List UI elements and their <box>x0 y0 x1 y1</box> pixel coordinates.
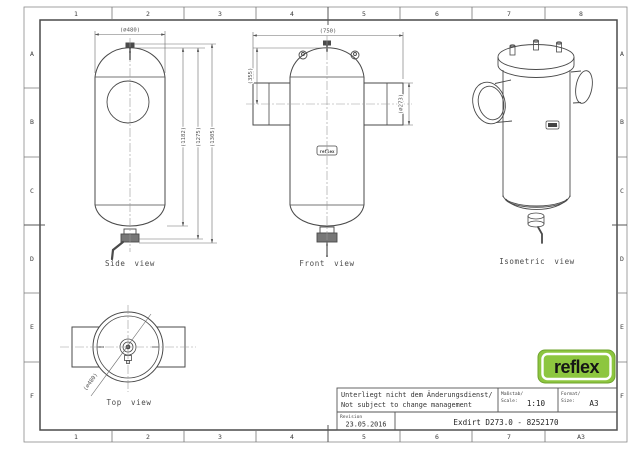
grid-bottom-6: 6 <box>435 433 439 441</box>
grid-top-4: 4 <box>290 10 294 18</box>
front-dim-width: (750) <box>320 29 337 35</box>
drawing-frame <box>24 7 627 442</box>
grid-top-8: 8 <box>579 10 583 18</box>
grid-right-f: F <box>620 392 624 400</box>
note-line2: Not subject to change management <box>341 401 472 409</box>
iso-left-nozzle <box>468 79 512 127</box>
grid-left-f: F <box>30 392 34 400</box>
iso-drain-valve-icon <box>528 213 544 243</box>
scale-label-2: Scale: <box>501 398 518 404</box>
outer-border <box>24 7 627 442</box>
grid-bottom-3: 3 <box>218 433 222 441</box>
side-view: (⌀480) (1182) (1275) (1305) Side view <box>95 28 217 269</box>
scale-label-1: Maßstab/ <box>501 391 523 397</box>
grid-top-3: 3 <box>218 10 222 18</box>
grid-right-b: B <box>620 118 624 126</box>
grid-left-a: A <box>30 50 34 58</box>
iso-top-fittings-icon <box>510 40 562 55</box>
grid-right-c: C <box>620 187 624 195</box>
grid-top-6: 6 <box>435 10 439 18</box>
grid-right-a: A <box>620 50 624 58</box>
part-title: Exdirt D273.0 - 8252170 <box>453 418 559 427</box>
logo-text: reflex <box>554 357 600 377</box>
top-view: (⌀480) Top view <box>60 305 196 407</box>
grid-top-1: 1 <box>74 10 78 18</box>
iso-body <box>503 70 570 197</box>
format-value: A3 <box>589 399 598 408</box>
front-centerlines <box>246 36 412 255</box>
front-view-label: Front view <box>299 259 354 268</box>
top-view-label: Top view <box>107 398 152 407</box>
grid-top-2: 2 <box>146 10 150 18</box>
side-dim-diameter: (⌀480) <box>120 28 140 34</box>
isometric-view: reflex Isometric view <box>468 40 594 266</box>
front-dimensions <box>253 32 413 125</box>
side-dim-1275: (1275) <box>196 127 202 147</box>
format-label-2: Size: <box>561 398 575 404</box>
grid-left-b: B <box>30 118 34 126</box>
grid-left-c: C <box>30 187 34 195</box>
grid-top-7: 7 <box>507 10 511 18</box>
grid-left-d: D <box>30 255 34 263</box>
drawing-sheet: 1 2 3 4 5 6 7 8 1 2 3 4 5 6 7 A3 A B C D… <box>0 0 640 452</box>
reflex-logo: reflex <box>538 350 615 383</box>
grid-top-5: 5 <box>362 10 366 18</box>
iso-nameplate-text: reflex <box>547 124 557 128</box>
grid-bottom-8: A3 <box>577 433 585 441</box>
cad-drawing: 1 2 3 4 5 6 7 8 1 2 3 4 5 6 7 A3 A B C D… <box>0 0 640 452</box>
top-dim-diameter: (⌀480) <box>83 372 100 392</box>
note-line1: Unterliegt nicht dem Änderungsdienst/ <box>341 390 492 399</box>
drain-valve-icon <box>112 229 139 259</box>
side-view-label: Side view <box>105 259 155 268</box>
grid-left-e: E <box>30 323 34 331</box>
grid-bottom-7: 7 <box>507 433 511 441</box>
front-dim-355: (355) <box>248 68 254 85</box>
iso-lid <box>498 45 574 78</box>
iso-nameplate: reflex <box>546 121 559 129</box>
grid-right-e: E <box>620 323 624 331</box>
revision-label: Revision <box>340 414 362 420</box>
title-block: Unterliegt nicht dem Änderungsdienst/ No… <box>337 388 617 430</box>
side-dim-1182: (1182) <box>181 127 187 147</box>
format-label-1: Format/ <box>561 391 581 397</box>
scale-value: 1:10 <box>527 399 546 408</box>
grid-bottom-1: 1 <box>74 433 78 441</box>
front-dim-273: (⌀273) <box>399 94 405 114</box>
grid-bottom-5: 5 <box>362 433 366 441</box>
side-nozzle-face <box>107 81 149 123</box>
grid-right-d: D <box>620 255 624 263</box>
grid-bottom-2: 2 <box>146 433 150 441</box>
revision-value: 23.05.2016 <box>346 421 387 429</box>
iso-right-nozzle <box>571 69 595 104</box>
iso-bottom-dish <box>503 195 570 209</box>
side-dim-1305: (1305) <box>210 127 216 147</box>
front-view: reflex (750) (355) (⌀273) Front view <box>246 29 413 269</box>
grid-bottom-4: 4 <box>290 433 294 441</box>
isometric-view-label: Isometric view <box>499 257 575 266</box>
